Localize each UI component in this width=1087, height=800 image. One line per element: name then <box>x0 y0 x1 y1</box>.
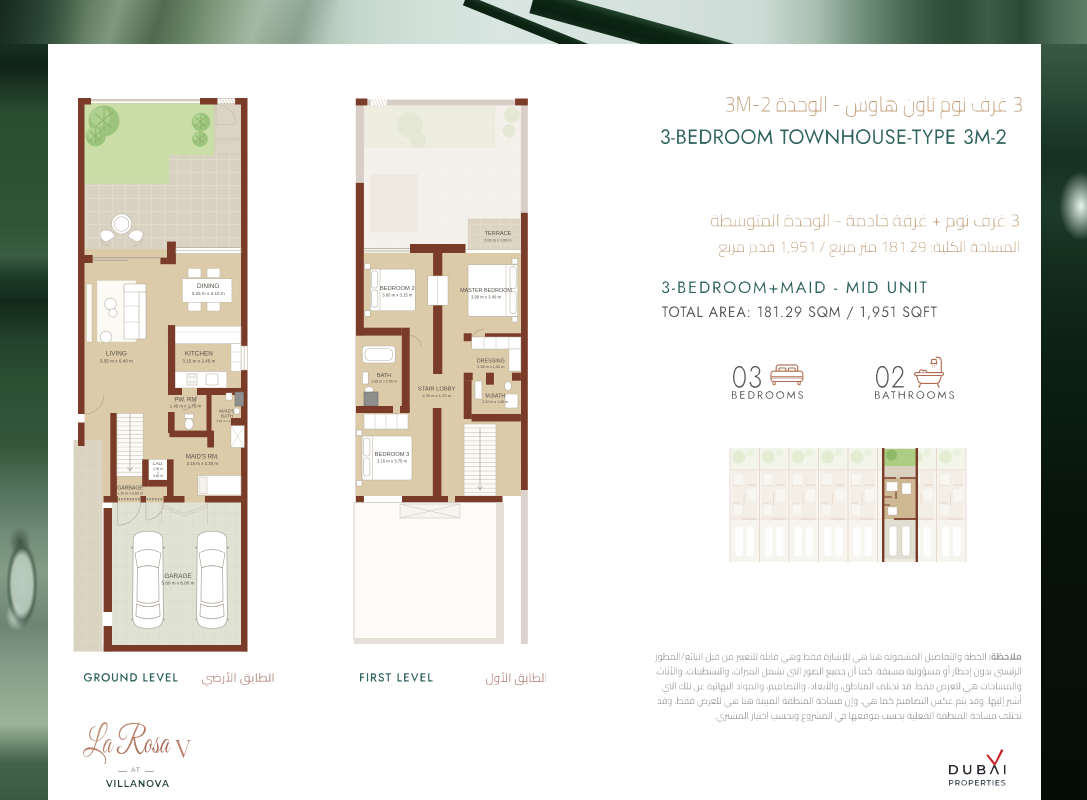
svg-text:3.15 m x 2.45 m: 3.15 m x 2.45 m <box>182 359 215 364</box>
svg-text:2.20 m x 1.65 m: 2.20 m x 1.65 m <box>482 400 508 404</box>
svg-text:DINING: DINING <box>197 283 219 290</box>
svg-text:1.10 m x 0.60 m: 1.10 m x 0.60 m <box>117 492 143 496</box>
svg-text:1.45 m x 1.75 m: 1.45 m x 1.75 m <box>170 404 202 409</box>
svg-text:3.25 m x 3.10 m: 3.25 m x 3.10 m <box>192 291 225 296</box>
svg-text:BATH: BATH <box>221 413 233 418</box>
svg-text:TERRACE: TERRACE <box>485 231 512 237</box>
svg-text:3.55 m x 6.40 m: 3.55 m x 6.40 m <box>100 359 133 364</box>
svg-text:BEDROOM 3: BEDROOM 3 <box>375 452 410 458</box>
svg-text:1.40 m x 2.10 m: 1.40 m x 2.10 m <box>216 419 238 423</box>
svg-text:LIVING: LIVING <box>106 351 127 358</box>
svg-text:3.15 m x 3.75 m: 3.15 m x 3.75 m <box>377 458 408 463</box>
svg-text:3.15 m x 2.30 m: 3.15 m x 2.30 m <box>187 461 219 466</box>
svg-text:2.00 m x 1.00 m: 2.00 m x 1.00 m <box>484 238 511 242</box>
svg-text:M.BATH: M.BATH <box>485 393 505 399</box>
svg-text:5.60 m x 6.00 m: 5.60 m x 6.00 m <box>162 581 195 586</box>
svg-text:3.60 m x 3.15 m: 3.60 m x 3.15 m <box>382 293 413 298</box>
svg-text:GARAGE: GARAGE <box>164 573 191 580</box>
svg-text:KITCHEN: KITCHEN <box>185 351 213 358</box>
svg-text:BATH: BATH <box>377 373 391 379</box>
svg-text:2.30 m x 1.20 m: 2.30 m x 1.20 m <box>422 393 451 398</box>
svg-text:STAIR LOBBY: STAIR LOBBY <box>418 387 456 393</box>
svg-text:2.35 m x 1.50 m: 2.35 m x 1.50 m <box>477 365 504 369</box>
svg-text:1.95 m x 2.50 m: 1.95 m x 2.50 m <box>371 380 397 384</box>
svg-text:LAU.: LAU. <box>153 461 163 466</box>
svg-text:PW. RM: PW. RM <box>174 397 196 403</box>
svg-text:MASTER BEDROOM: MASTER BEDROOM <box>460 288 512 294</box>
svg-text:DRESSING: DRESSING <box>477 358 505 364</box>
svg-text:0.60 m: 0.60 m <box>153 474 163 478</box>
svg-text:MAID'S RM.: MAID'S RM. <box>186 454 219 460</box>
svg-text:BEDROOM 2: BEDROOM 2 <box>380 286 415 292</box>
svg-text:GARBAGE: GARBAGE <box>117 485 143 491</box>
svg-text:3.90 m x 3.40 m: 3.90 m x 3.40 m <box>471 295 502 300</box>
